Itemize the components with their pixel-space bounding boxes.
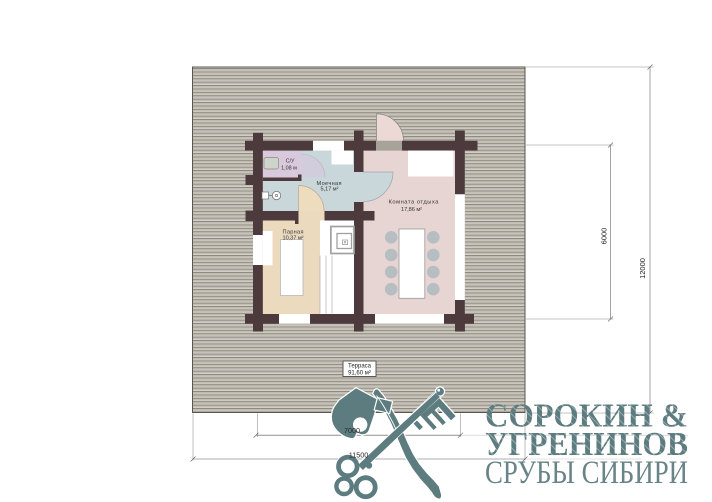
svg-text:СРУБЫ СИБИРИ: СРУБЫ СИБИРИ [485,455,688,491]
svg-text:6000: 6000 [600,228,609,245]
svg-text:91,60 м²: 91,60 м² [348,371,371,377]
svg-text:7000: 7000 [344,426,360,435]
svg-text:5,17 м²: 5,17 м² [321,187,339,193]
svg-text:Комната отдыха: Комната отдыха [389,200,440,206]
svg-text:10,37 м²: 10,37 м² [283,235,304,241]
svg-text:12000: 12000 [638,258,647,279]
svg-text:С/У: С/У [286,159,295,165]
svg-text:1,08 м: 1,08 м [281,165,297,171]
svg-text:17,86 м²: 17,86 м² [401,207,422,213]
svg-text:Терраса: Терраса [348,364,372,370]
svg-text:11500: 11500 [349,451,368,460]
